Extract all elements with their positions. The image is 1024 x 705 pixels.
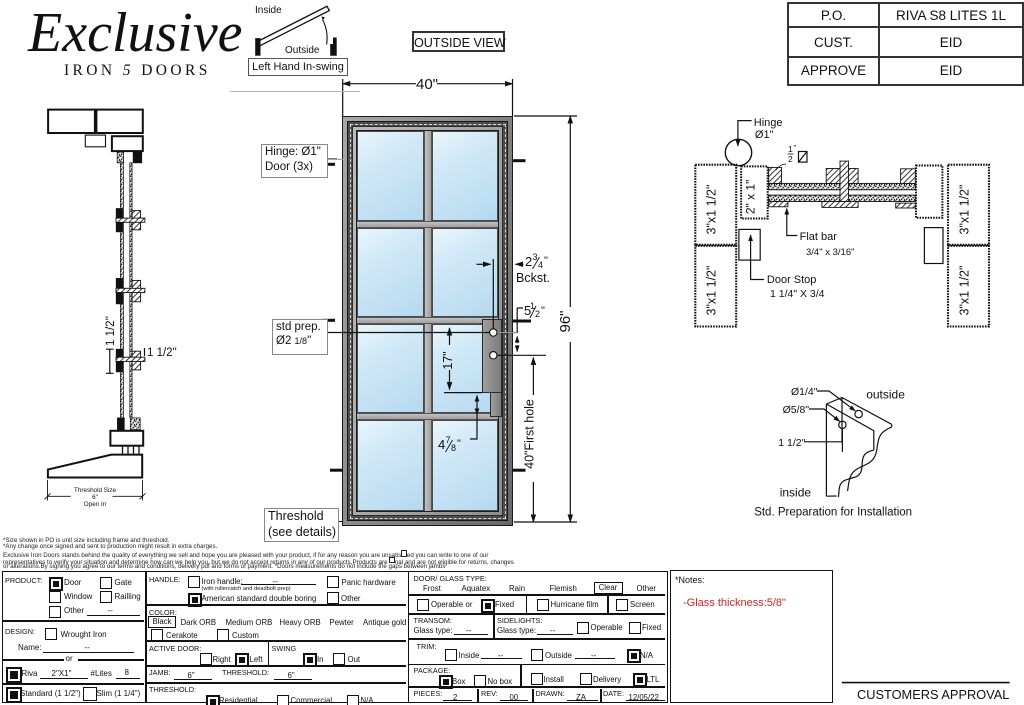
svg-text:inside: inside: [780, 486, 812, 500]
svg-text:Ø1/4": Ø1/4": [791, 386, 818, 398]
svg-text:Ø5/8": Ø5/8": [783, 404, 810, 416]
svg-text:2: 2: [788, 154, 793, 164]
svg-text:Bckst.: Bckst.: [516, 271, 550, 285]
svg-text:7: 7: [446, 435, 451, 445]
svg-text:1 1/2": 1 1/2": [147, 347, 177, 359]
svg-text:1 1/2'': 1 1/2'': [105, 316, 117, 346]
svg-text:6": 6": [92, 494, 98, 501]
svg-text:1 1/2": 1 1/2": [778, 437, 805, 449]
svg-text:Ø1": Ø1": [755, 129, 774, 141]
svg-text:17": 17": [441, 351, 455, 369]
svg-text:3"x1 1/2": 3"x1 1/2": [705, 185, 719, 235]
svg-text:3: 3: [533, 252, 538, 262]
svg-text:outside: outside: [866, 388, 905, 402]
svg-text:2: 2: [525, 254, 532, 269]
svg-text:96": 96": [557, 310, 574, 332]
svg-text:Threshold Size: Threshold Size: [74, 487, 116, 494]
svg-text:1 1/4" X 3/4: 1 1/4" X 3/4: [770, 288, 825, 300]
svg-text:1: 1: [788, 144, 793, 154]
svg-text:3"x1 1/2": 3"x1 1/2": [958, 185, 972, 235]
svg-text:Door Stop: Door Stop: [767, 274, 817, 286]
svg-text:Open In: Open In: [84, 501, 107, 508]
svg-text:3"x1 1/2": 3"x1 1/2": [705, 266, 719, 316]
svg-text:4: 4: [538, 260, 543, 270]
svg-text:2" x 1": 2" x 1": [743, 180, 757, 215]
svg-text:40"First hole: 40"First hole: [523, 399, 537, 469]
svg-text:3"x1 1/2": 3"x1 1/2": [958, 266, 972, 316]
svg-text:": ": [541, 305, 545, 317]
svg-text:Std. Preparation for Installat: Std. Preparation for Installation: [754, 507, 912, 519]
svg-text:": ": [544, 255, 548, 267]
svg-text:Flat bar: Flat bar: [800, 231, 838, 243]
svg-text:4: 4: [438, 437, 445, 452]
svg-text:8: 8: [451, 443, 456, 453]
svg-text:": ": [457, 438, 461, 450]
svg-text:Hinge: Hinge: [754, 117, 783, 129]
svg-text:40": 40": [416, 76, 438, 93]
svg-text:3/4" x 3/16": 3/4" x 3/16": [806, 247, 854, 258]
svg-text:": ": [794, 143, 797, 152]
svg-text:CUSTOMERS APPROVAL: CUSTOMERS APPROVAL: [857, 687, 1009, 702]
svg-text:2: 2: [535, 309, 540, 319]
